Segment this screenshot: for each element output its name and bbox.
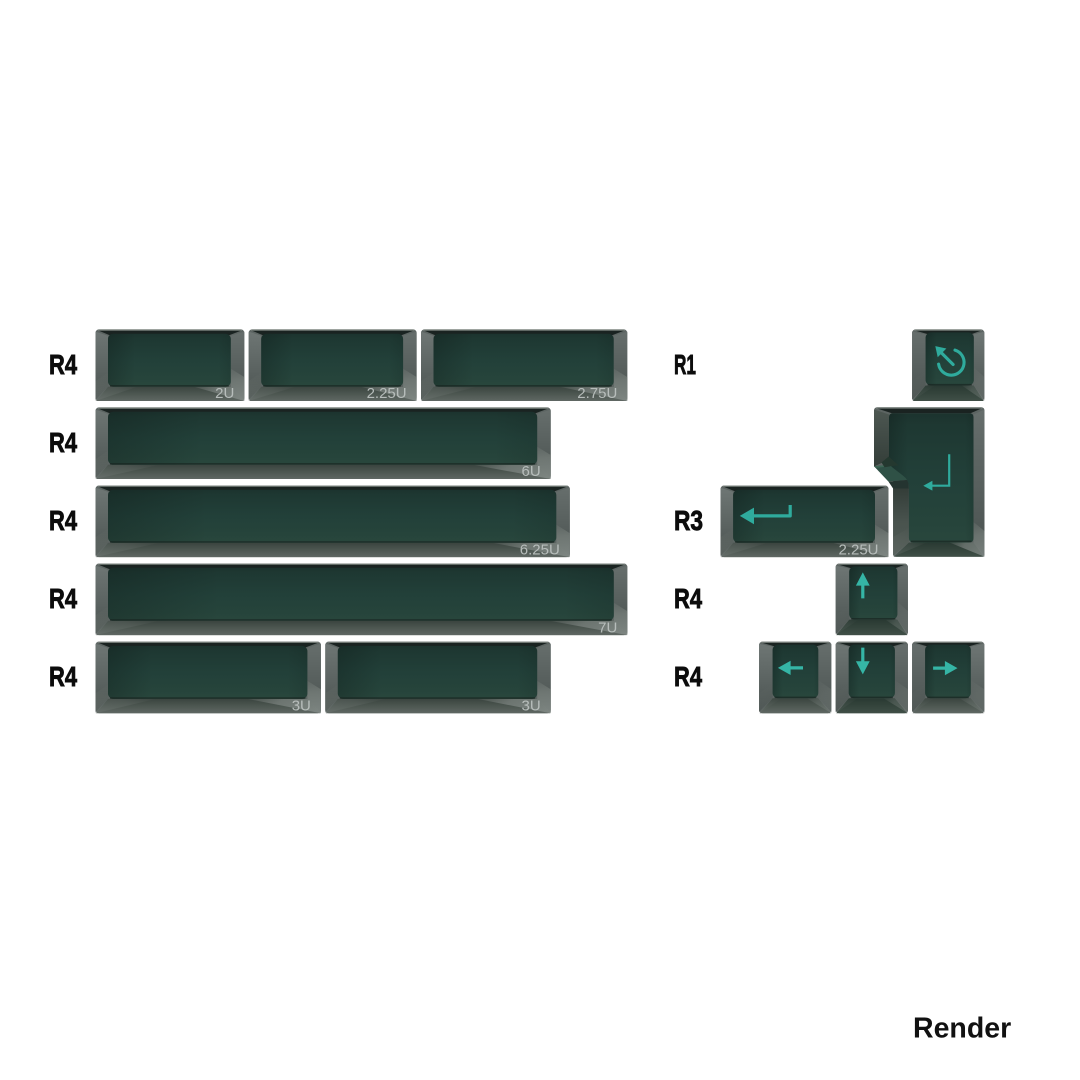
svg-text:7U: 7U (598, 619, 617, 636)
svg-text:6.25U: 6.25U (520, 541, 560, 558)
svg-text:R4: R4 (674, 583, 702, 614)
svg-text:R4: R4 (674, 661, 702, 692)
svg-text:2U: 2U (215, 385, 234, 402)
svg-text:R4: R4 (49, 661, 77, 692)
svg-text:R4: R4 (49, 583, 77, 614)
svg-text:3U: 3U (522, 697, 541, 714)
svg-text:2.75U: 2.75U (577, 385, 617, 402)
svg-text:R4: R4 (49, 427, 77, 458)
svg-text:3U: 3U (292, 697, 311, 714)
svg-text:R3: R3 (674, 505, 703, 536)
svg-text:R4: R4 (49, 505, 77, 536)
svg-text:2.25U: 2.25U (367, 385, 407, 402)
svg-text:R1: R1 (674, 349, 696, 380)
svg-text:2.25U: 2.25U (838, 541, 878, 558)
svg-text:Render: Render (913, 1013, 1011, 1045)
svg-text:6U: 6U (522, 463, 541, 480)
svg-text:R4: R4 (49, 349, 77, 380)
